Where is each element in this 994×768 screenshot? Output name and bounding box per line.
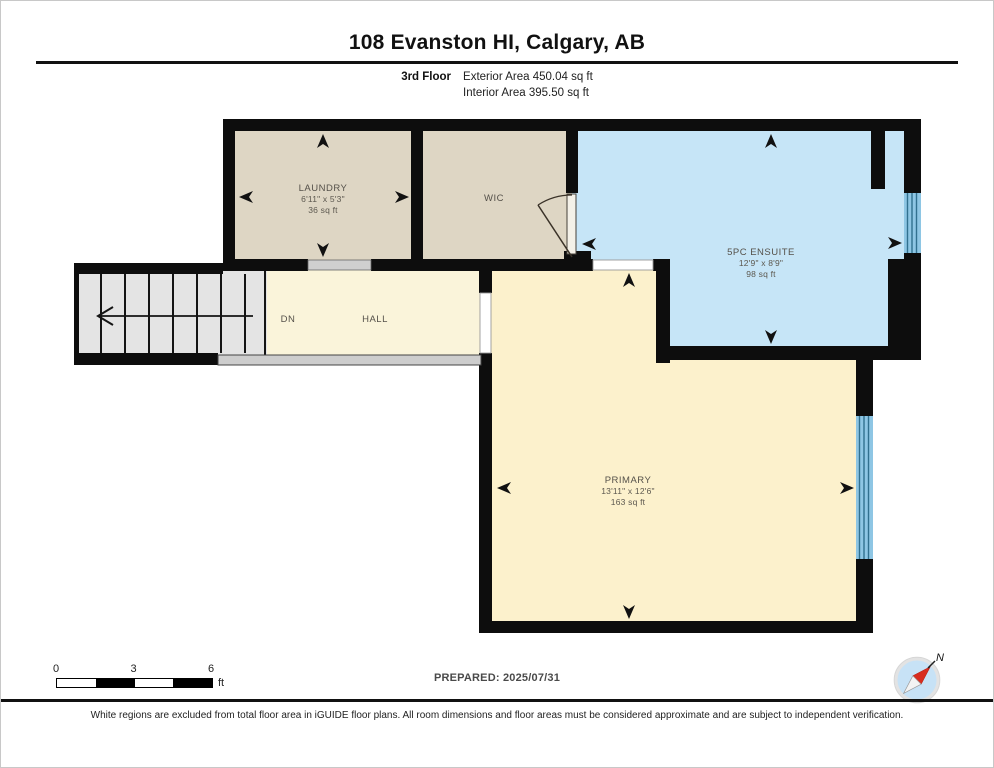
primary-area: 163 sq ft: [611, 497, 646, 507]
hall-label: HALL: [362, 314, 388, 325]
shower-partition-wall: [871, 131, 885, 189]
laundry-dims: 6'11" x 5'3": [301, 194, 345, 204]
compass-north-label: N: [936, 652, 944, 664]
primary-window: [856, 416, 873, 559]
primary-door-opening: [480, 293, 491, 353]
wic-label: WIC: [484, 193, 504, 204]
ensuite-door-opening: [593, 260, 653, 270]
floorplan-page: 108 Evanston HI, Calgary, AB 3rd Floor E…: [0, 0, 994, 768]
ensuite-dims: 12'9" x 8'9": [739, 258, 783, 268]
hall-railing: [218, 355, 481, 365]
disclaimer-text: White regions are excluded from total fl…: [1, 710, 993, 721]
primary-label: PRIMARY: [605, 475, 652, 486]
floorplan-drawing: LAUNDRY 6'11" x 5'3" 36 sq ft WIC 5PC EN…: [1, 1, 993, 767]
primary-dims: 13'11" x 12'6": [601, 486, 655, 496]
ensuite-label: 5PC ENSUITE: [727, 247, 795, 258]
footer-divider: [1, 699, 993, 702]
laundry-label: LAUNDRY: [299, 183, 348, 194]
stairs-dn-label: DN: [281, 314, 296, 325]
ensuite-area: 98 sq ft: [746, 269, 776, 279]
prepared-date: PREPARED: 2025/07/31: [1, 672, 993, 684]
laundry-door-threshold: [308, 260, 371, 270]
ensuite-window: [904, 193, 921, 253]
laundry-area: 36 sq ft: [308, 205, 338, 215]
